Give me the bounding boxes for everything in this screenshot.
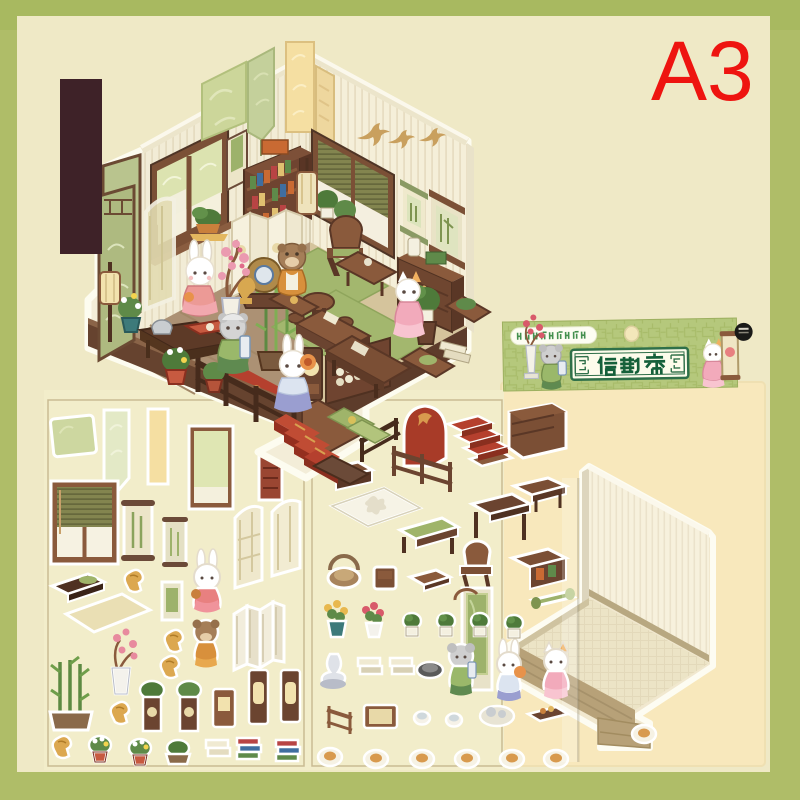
svg-text:A3: A3	[651, 24, 754, 118]
